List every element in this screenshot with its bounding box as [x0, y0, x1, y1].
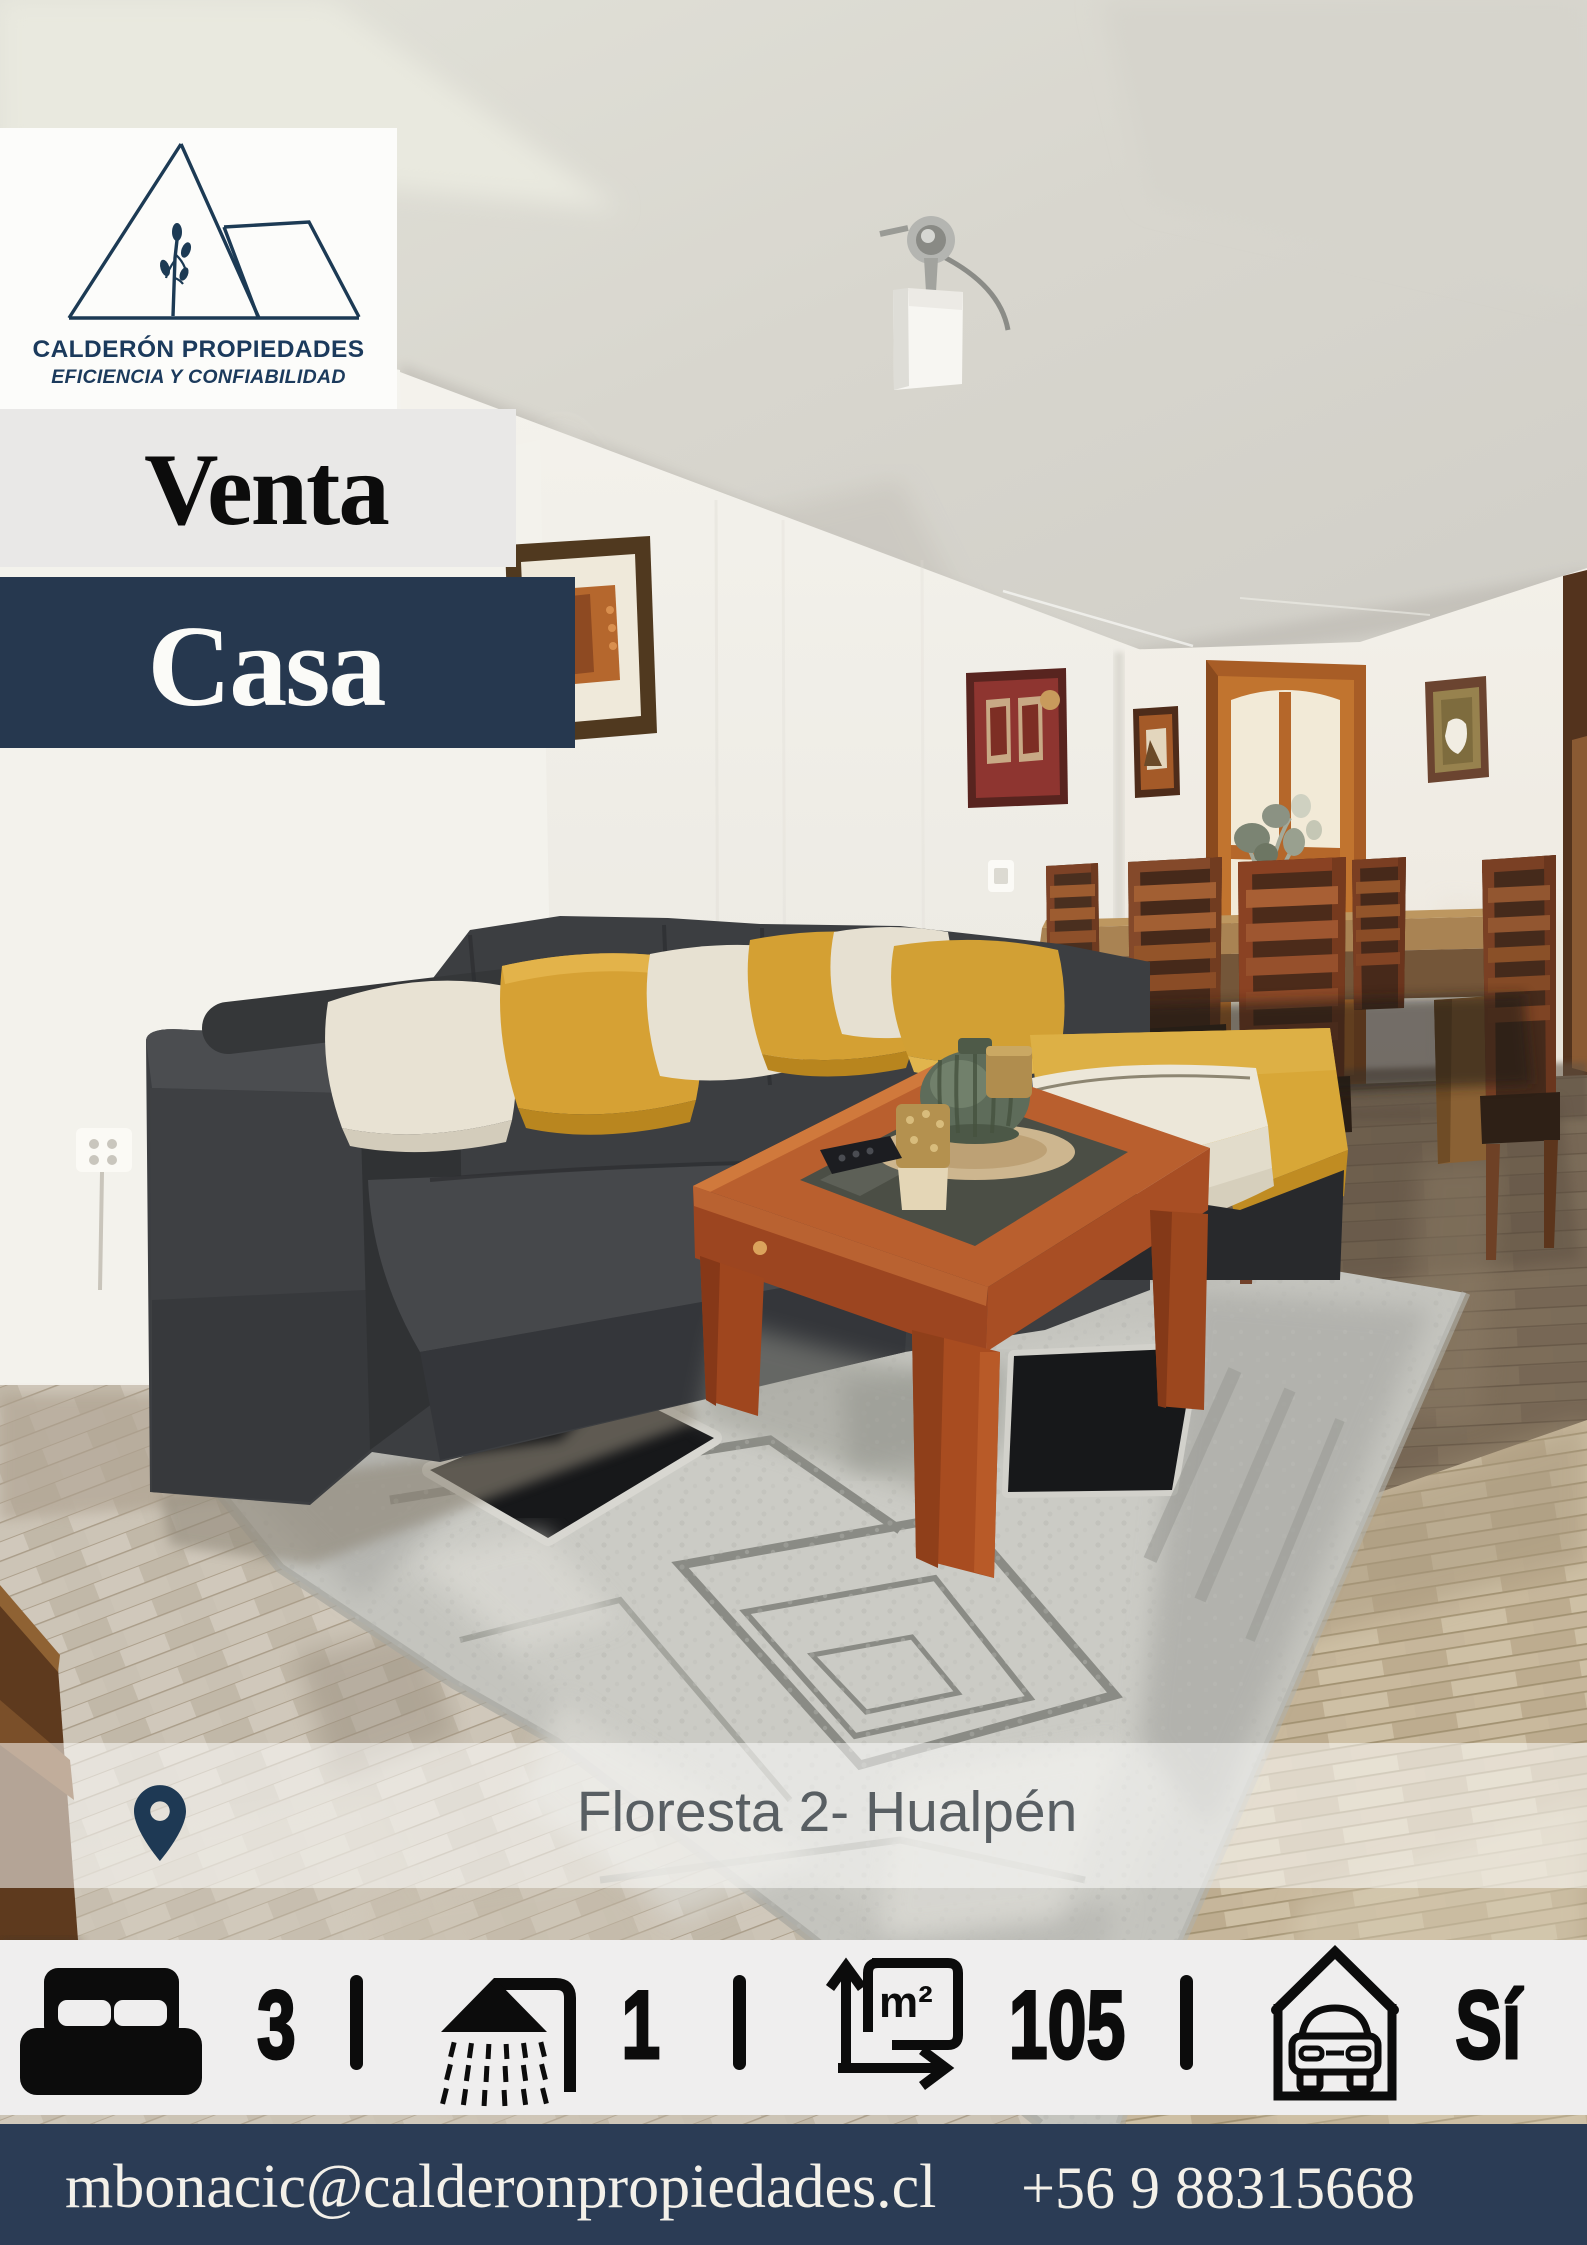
svg-text:Sí: Sí: [1455, 1970, 1523, 2079]
svg-text:1: 1: [621, 1970, 660, 2079]
svg-text:3: 3: [257, 1970, 296, 2079]
svg-text:m²: m²: [879, 1978, 933, 2027]
svg-text:105: 105: [1009, 1970, 1126, 2079]
